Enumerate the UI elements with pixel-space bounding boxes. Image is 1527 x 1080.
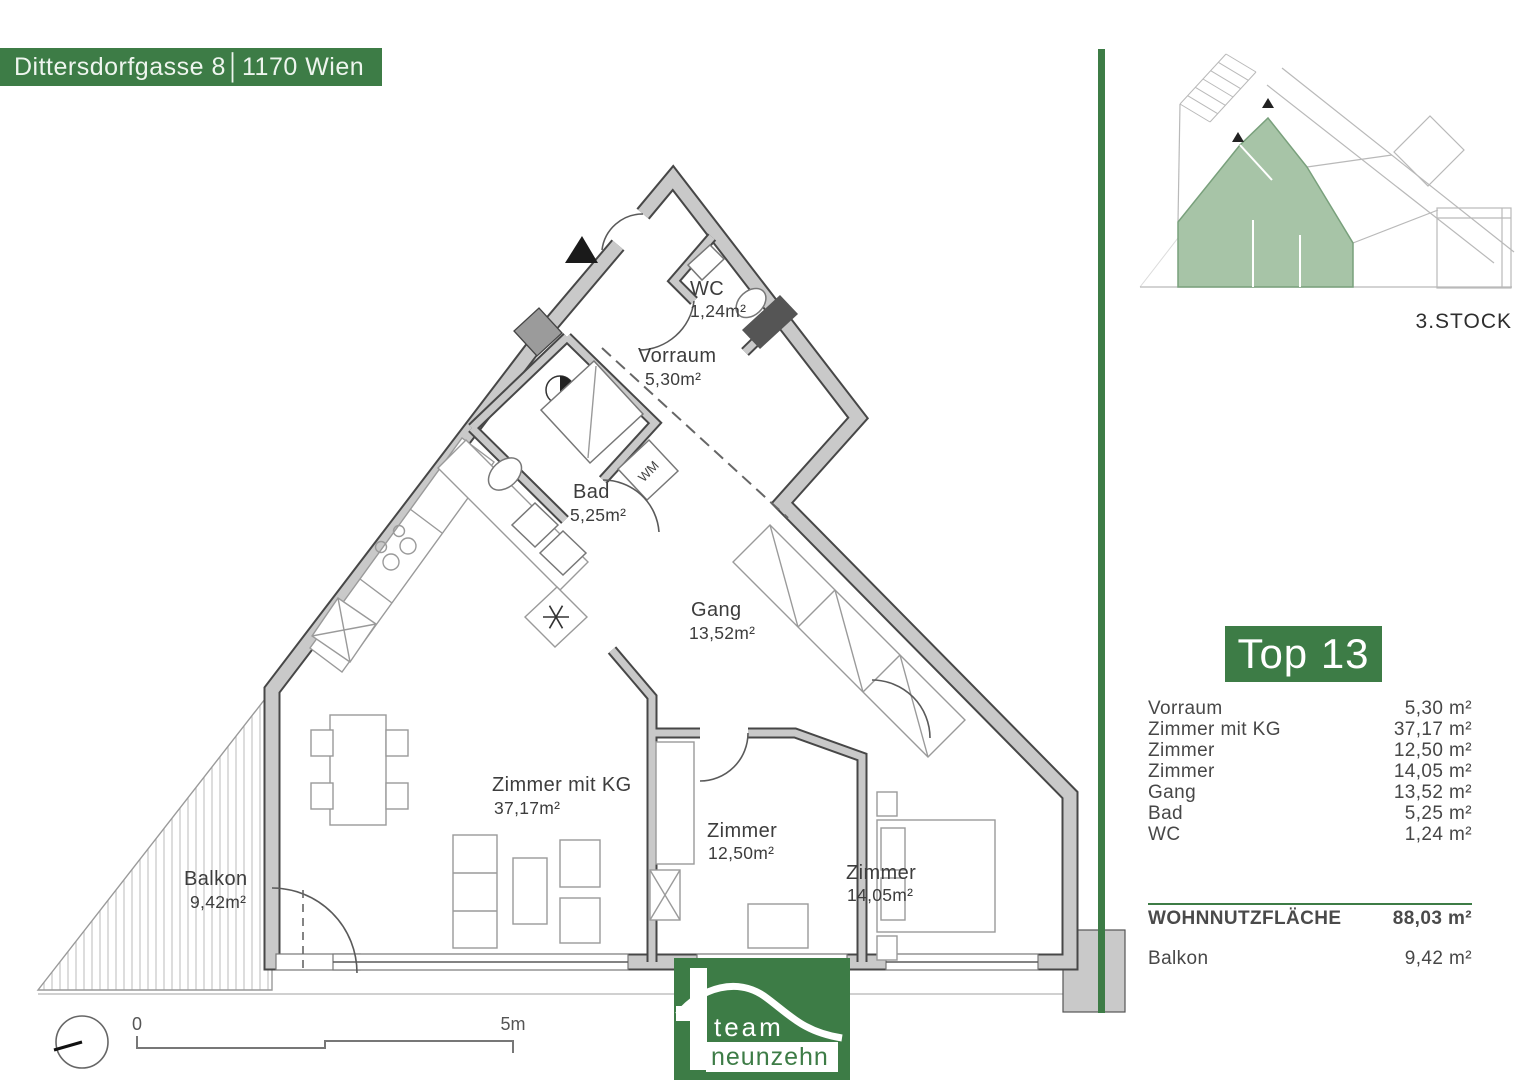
nightstand <box>877 936 897 960</box>
room-name: Bad <box>1148 803 1183 824</box>
table-row: WC 1,24 m² <box>1148 824 1472 845</box>
room-label-vorraum: Vorraum 5,30m² <box>638 345 716 389</box>
room-name: Zimmer mit KG <box>1148 719 1281 740</box>
room-label-zimmer-kg: Zimmer mit KG 37,17m² <box>492 774 632 818</box>
room-area: 12,50 m² <box>1394 740 1472 761</box>
room-area: 37,17m² <box>494 798 560 818</box>
coffee-table <box>513 858 547 924</box>
sofa <box>453 835 497 948</box>
chair <box>386 730 408 756</box>
logo-line1: team <box>714 1012 784 1042</box>
overview-stairs <box>1180 54 1256 122</box>
room-area-table: Vorraum 5,30 m² Zimmer mit KG 37,17 m² Z… <box>1148 698 1472 845</box>
room-label-zimmer1: Zimmer 12,50m² <box>707 820 777 863</box>
room-name: Gang <box>1148 782 1196 803</box>
overview-arrow-icon <box>1262 98 1274 108</box>
room-area: 5,30 m² <box>1405 698 1472 719</box>
room-area: 5,25m² <box>570 505 626 525</box>
room-area: 37,17 m² <box>1394 719 1472 740</box>
logo-t-bar <box>690 968 707 1070</box>
balcony-area: 9,42 m² <box>1405 948 1472 970</box>
room-area: 5,30m² <box>645 369 701 389</box>
room-label-zimmer2: Zimmer 14,05m² <box>846 862 916 905</box>
table-row: Zimmer mit KG 37,17 m² <box>1148 719 1472 740</box>
logo-line2: neunzehn <box>711 1043 829 1071</box>
room-name: Zimmer <box>846 862 916 884</box>
table-row: Bad 5,25 m² <box>1148 803 1472 824</box>
balcony-row: Balkon 9,42 m² <box>1148 948 1472 970</box>
room-name: Gang <box>691 599 742 621</box>
room-label-bad: Bad 5,25m² <box>570 481 626 525</box>
compass <box>54 1016 108 1068</box>
room-area: 12,50m² <box>708 843 774 863</box>
room-area: 13,52m² <box>689 623 755 643</box>
room-name: WC <box>690 278 724 300</box>
kitchen-counter <box>310 376 588 672</box>
overview-floor-label: 3.STOCK <box>1416 310 1512 333</box>
unit-title: Top 13 <box>1225 626 1382 682</box>
floorplan-sheet: WM <box>0 0 1527 1080</box>
total-label: WOHNNUTZFLÄCHE <box>1148 908 1341 930</box>
room-name: Vorraum <box>638 345 716 367</box>
room-area: 13,52 m² <box>1394 782 1472 803</box>
room-area: 9,42m² <box>190 892 246 912</box>
room-area: 14,05 m² <box>1394 761 1472 782</box>
total-row: WOHNNUTZFLÄCHE 88,03 m² <box>1148 908 1472 930</box>
total-area: 88,03 m² <box>1393 908 1472 930</box>
chair <box>311 783 333 809</box>
dining-table <box>330 715 386 825</box>
logo-team-neunzehn: team neunzehn <box>674 958 850 1080</box>
balcony-label: Balkon <box>1148 948 1209 970</box>
overview-arrow-icon <box>1232 132 1244 142</box>
chair <box>311 730 333 756</box>
room-name: Zimmer <box>707 820 777 842</box>
total-divider-line <box>1148 903 1472 905</box>
room-name: Zimmer mit KG <box>492 774 632 796</box>
armchair <box>560 840 600 887</box>
green-divider <box>1098 49 1105 1013</box>
wardrobe <box>656 742 694 864</box>
room-area: 1,24 m² <box>1405 824 1472 845</box>
room-area: 14,05m² <box>847 885 913 905</box>
table-row: Zimmer 12,50 m² <box>1148 740 1472 761</box>
chair <box>386 783 408 809</box>
overview-highlighted-unit <box>1178 118 1353 287</box>
room-name: Vorraum <box>1148 698 1223 719</box>
room-name: WC <box>1148 824 1180 845</box>
scale-end-label: 5m <box>500 1014 525 1034</box>
entrance-arrow-icon <box>565 236 598 263</box>
room-name: Zimmer <box>1148 740 1215 761</box>
scale-bar <box>137 1036 513 1053</box>
living-furniture <box>311 715 600 948</box>
room-name: Balkon <box>184 868 248 890</box>
desk <box>748 904 808 948</box>
room-area: 5,25 m² <box>1405 803 1472 824</box>
room-area: 1,24m² <box>690 301 746 321</box>
overview-siteplan: 3.STOCK <box>1122 40 1517 340</box>
room-name: Bad <box>573 481 610 503</box>
address-header: Dittersdorfgasse 8│1170 Wien <box>0 48 382 86</box>
scale-start-label: 0 <box>132 1014 142 1034</box>
table-row: Vorraum 5,30 m² <box>1148 698 1472 719</box>
table-row: Zimmer 14,05 m² <box>1148 761 1472 782</box>
nightstand <box>877 792 897 816</box>
table-row: Gang 13,52 m² <box>1148 782 1472 803</box>
room-name: Zimmer <box>1148 761 1215 782</box>
armchair <box>560 898 600 943</box>
room-label-gang: Gang 13,52m² <box>689 599 755 643</box>
